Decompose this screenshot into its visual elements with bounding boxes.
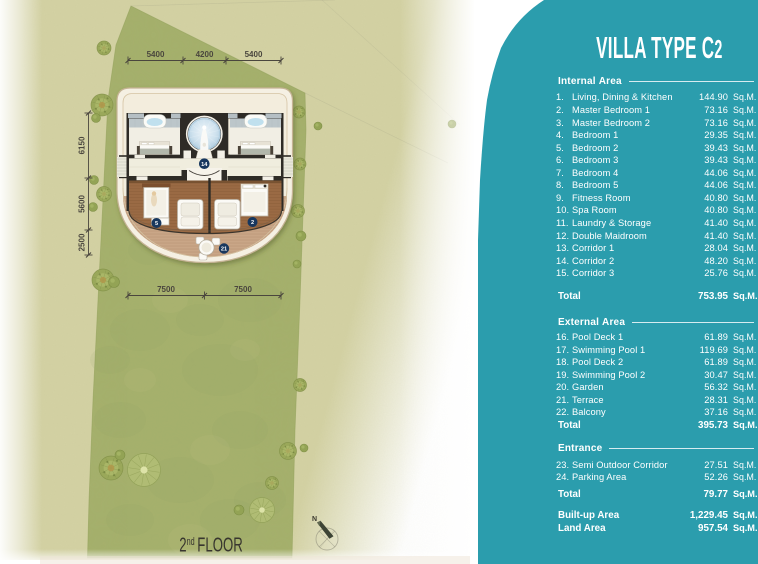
svg-text:5400: 5400 <box>245 50 263 59</box>
svg-text:5400: 5400 <box>147 50 165 59</box>
svg-text:7500: 7500 <box>157 285 175 294</box>
svg-text:5600: 5600 <box>78 195 87 213</box>
svg-text:2500: 2500 <box>78 233 87 251</box>
svg-text:6150: 6150 <box>78 136 87 154</box>
svg-text:14: 14 <box>201 162 208 168</box>
svg-text:7500: 7500 <box>234 285 252 294</box>
svg-text:2: 2 <box>251 220 254 226</box>
svg-text:N: N <box>312 516 317 523</box>
svg-text:4200: 4200 <box>196 50 214 59</box>
svg-text:21: 21 <box>221 247 227 253</box>
svg-text:5: 5 <box>155 221 158 227</box>
